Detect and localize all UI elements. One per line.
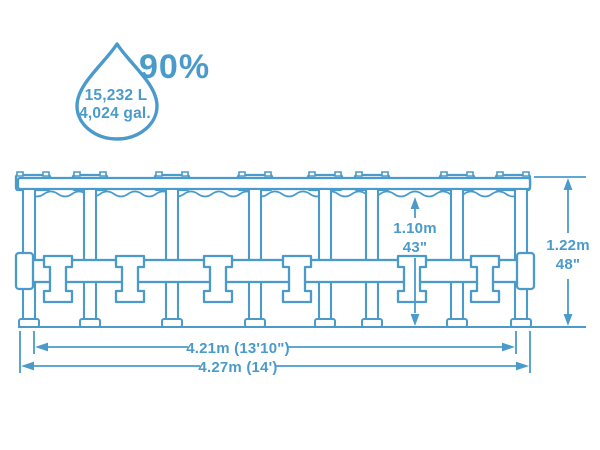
leg-foot xyxy=(447,319,467,327)
capacity-liters-label: 15,232 L xyxy=(85,87,148,105)
arrow-up-icon xyxy=(564,178,573,190)
leg-foot xyxy=(19,319,39,327)
wall-height-imperial: 48" xyxy=(546,255,590,274)
arrow-down-icon xyxy=(564,314,573,326)
pool-spec-diagram: 90% 15,232 L 4,024 gal. 1.10m 43" 1.22m … xyxy=(0,0,600,450)
water-height-imperial: 43" xyxy=(393,238,437,257)
band-end-cap xyxy=(517,253,534,289)
leg-foot xyxy=(315,319,335,327)
leg-foot xyxy=(362,319,382,327)
leg-foot xyxy=(245,319,265,327)
leg-feet xyxy=(19,319,531,327)
arrow-right-icon xyxy=(502,343,515,352)
pool-frame xyxy=(16,172,586,327)
leg-foot xyxy=(511,319,531,327)
arrow-down-icon xyxy=(411,314,420,326)
outer-diameter-label: 4.27m (14') xyxy=(198,358,277,377)
arrow-left-icon xyxy=(21,362,34,371)
pool-legs xyxy=(23,189,527,321)
capacity-gallons-label: 4,024 gal. xyxy=(79,105,151,123)
wrap-band xyxy=(20,260,530,282)
arrow-left-icon xyxy=(35,343,48,352)
water-height-metric: 1.10m xyxy=(393,219,437,238)
pool-diagram-canvas xyxy=(0,0,600,450)
top-rail xyxy=(18,178,530,189)
arrow-up-icon xyxy=(411,197,420,209)
wall-height-metric: 1.22m xyxy=(546,236,590,255)
capacity-percent-label: 90% xyxy=(139,50,210,84)
frame-diameter-label: 4.21m (13'10") xyxy=(186,339,290,358)
wall-height-label: 1.22m 48" xyxy=(546,236,590,274)
band-end-cap xyxy=(16,253,33,289)
water-line xyxy=(30,192,520,197)
leg-foot xyxy=(162,319,182,327)
arrow-right-icon xyxy=(516,362,529,371)
leg-foot xyxy=(80,319,100,327)
water-height-label: 1.10m 43" xyxy=(393,219,437,257)
